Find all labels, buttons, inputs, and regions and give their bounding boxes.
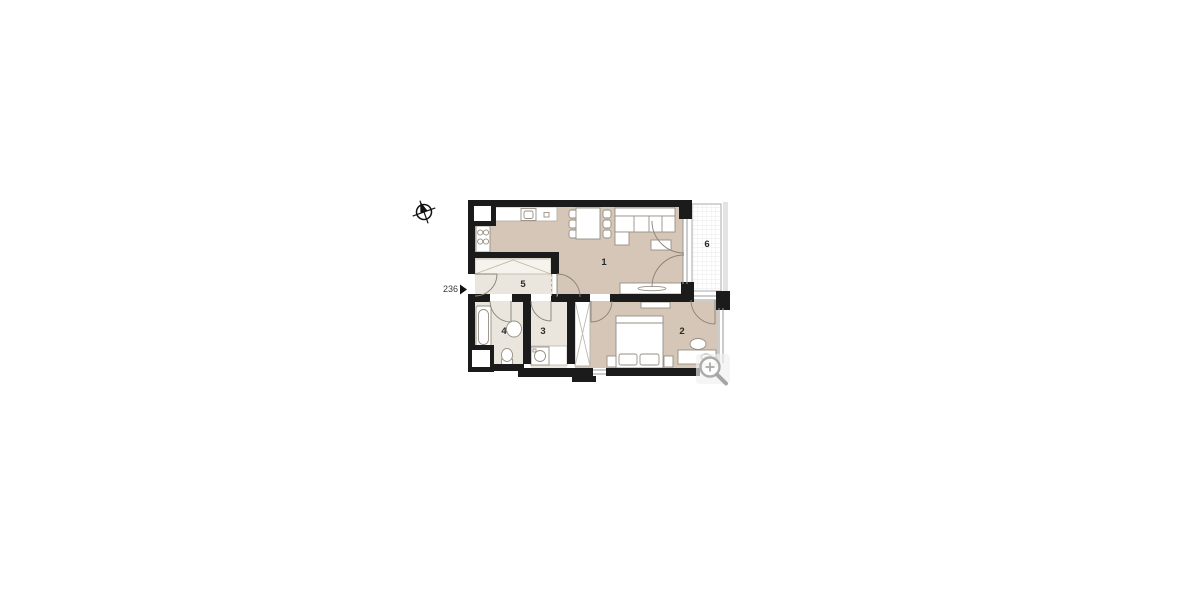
pillow (640, 354, 659, 365)
wall-corner-top-right (679, 200, 692, 219)
room-label-hallway: 5 (520, 279, 526, 290)
washing-machine (531, 347, 549, 365)
bathroom-sink (507, 321, 522, 337)
wall-mid-b (512, 294, 531, 302)
building-edge (723, 202, 728, 291)
bedroom-shelf (641, 302, 670, 308)
floor-plan: 1 2 3 4 5 6 236 (0, 0, 1200, 600)
wall-bath-utility (523, 301, 531, 364)
wall-kitchen-hall (468, 252, 557, 258)
unit-number-label: 236 (443, 284, 458, 294)
toilet (502, 349, 513, 366)
room-label-bathroom: 4 (501, 326, 507, 337)
room-label-bedroom: 2 (679, 326, 684, 337)
tv-stand (620, 283, 683, 294)
bathtub (476, 306, 491, 348)
bedroom-wardrobe (575, 301, 590, 366)
page: 1 2 3 4 5 6 236 (0, 0, 1200, 600)
kitchen-counter (494, 207, 557, 221)
wall-utility-bedroom (567, 301, 575, 364)
room-label-balcony: 6 (704, 239, 709, 250)
entry-arrow-icon (460, 285, 467, 295)
dining-table (576, 208, 600, 239)
pillow (619, 354, 637, 365)
shaft-bottom-left-void (472, 350, 490, 367)
kitchen-sink-basin (524, 211, 533, 219)
shaft-top-left-void (474, 206, 491, 221)
nightstand (664, 356, 673, 367)
wall-step (572, 376, 596, 382)
desk-chair (690, 339, 706, 350)
wall-corner-balcony (716, 291, 730, 310)
wall-hall-right (551, 252, 559, 274)
entry-marker: 236 (443, 284, 467, 295)
stove (476, 226, 490, 252)
wall-bottom-utility (518, 368, 576, 377)
wall-mid-a (468, 294, 490, 302)
room-label-living: 1 (601, 257, 607, 268)
nightstand (607, 356, 616, 367)
hallway-wardrobe (475, 259, 551, 274)
dining-chair (603, 230, 611, 238)
wall-bottom-bedroom-a (568, 368, 593, 376)
dining-chair (603, 210, 611, 218)
wall-top (468, 200, 692, 207)
wall-bottom-bedroom-b (606, 368, 700, 376)
dining-chair (603, 220, 611, 228)
wall-mid-d (610, 294, 694, 302)
zoom-button[interactable] (696, 354, 730, 384)
compass-icon (409, 197, 440, 228)
counter-fixture (544, 213, 549, 218)
room-label-utility: 3 (540, 326, 545, 337)
bed (616, 316, 663, 368)
dining-set (569, 208, 611, 239)
